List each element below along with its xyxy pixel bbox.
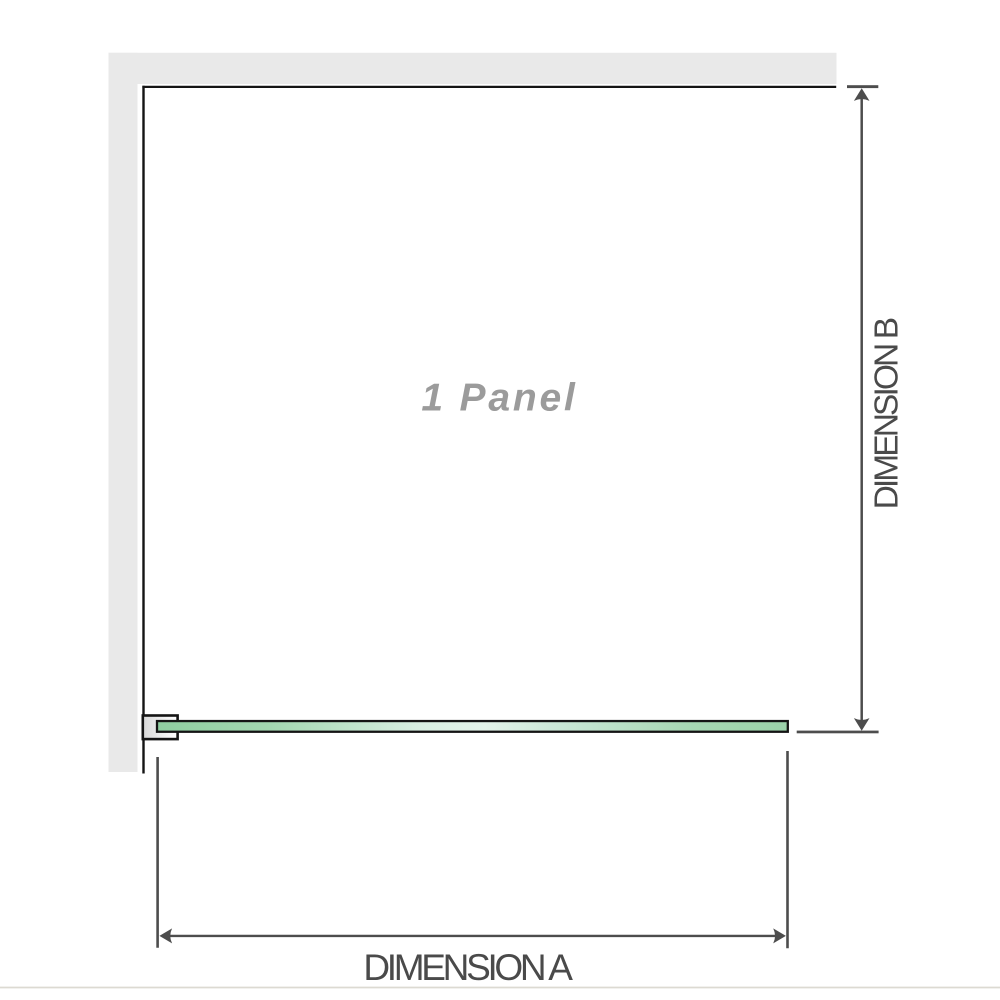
svg-text:DIMENSION A: DIMENSION A	[363, 947, 573, 988]
svg-text:1 Panel: 1 Panel	[421, 377, 577, 420]
svg-text:DIMENSION B: DIMENSION B	[869, 318, 906, 509]
